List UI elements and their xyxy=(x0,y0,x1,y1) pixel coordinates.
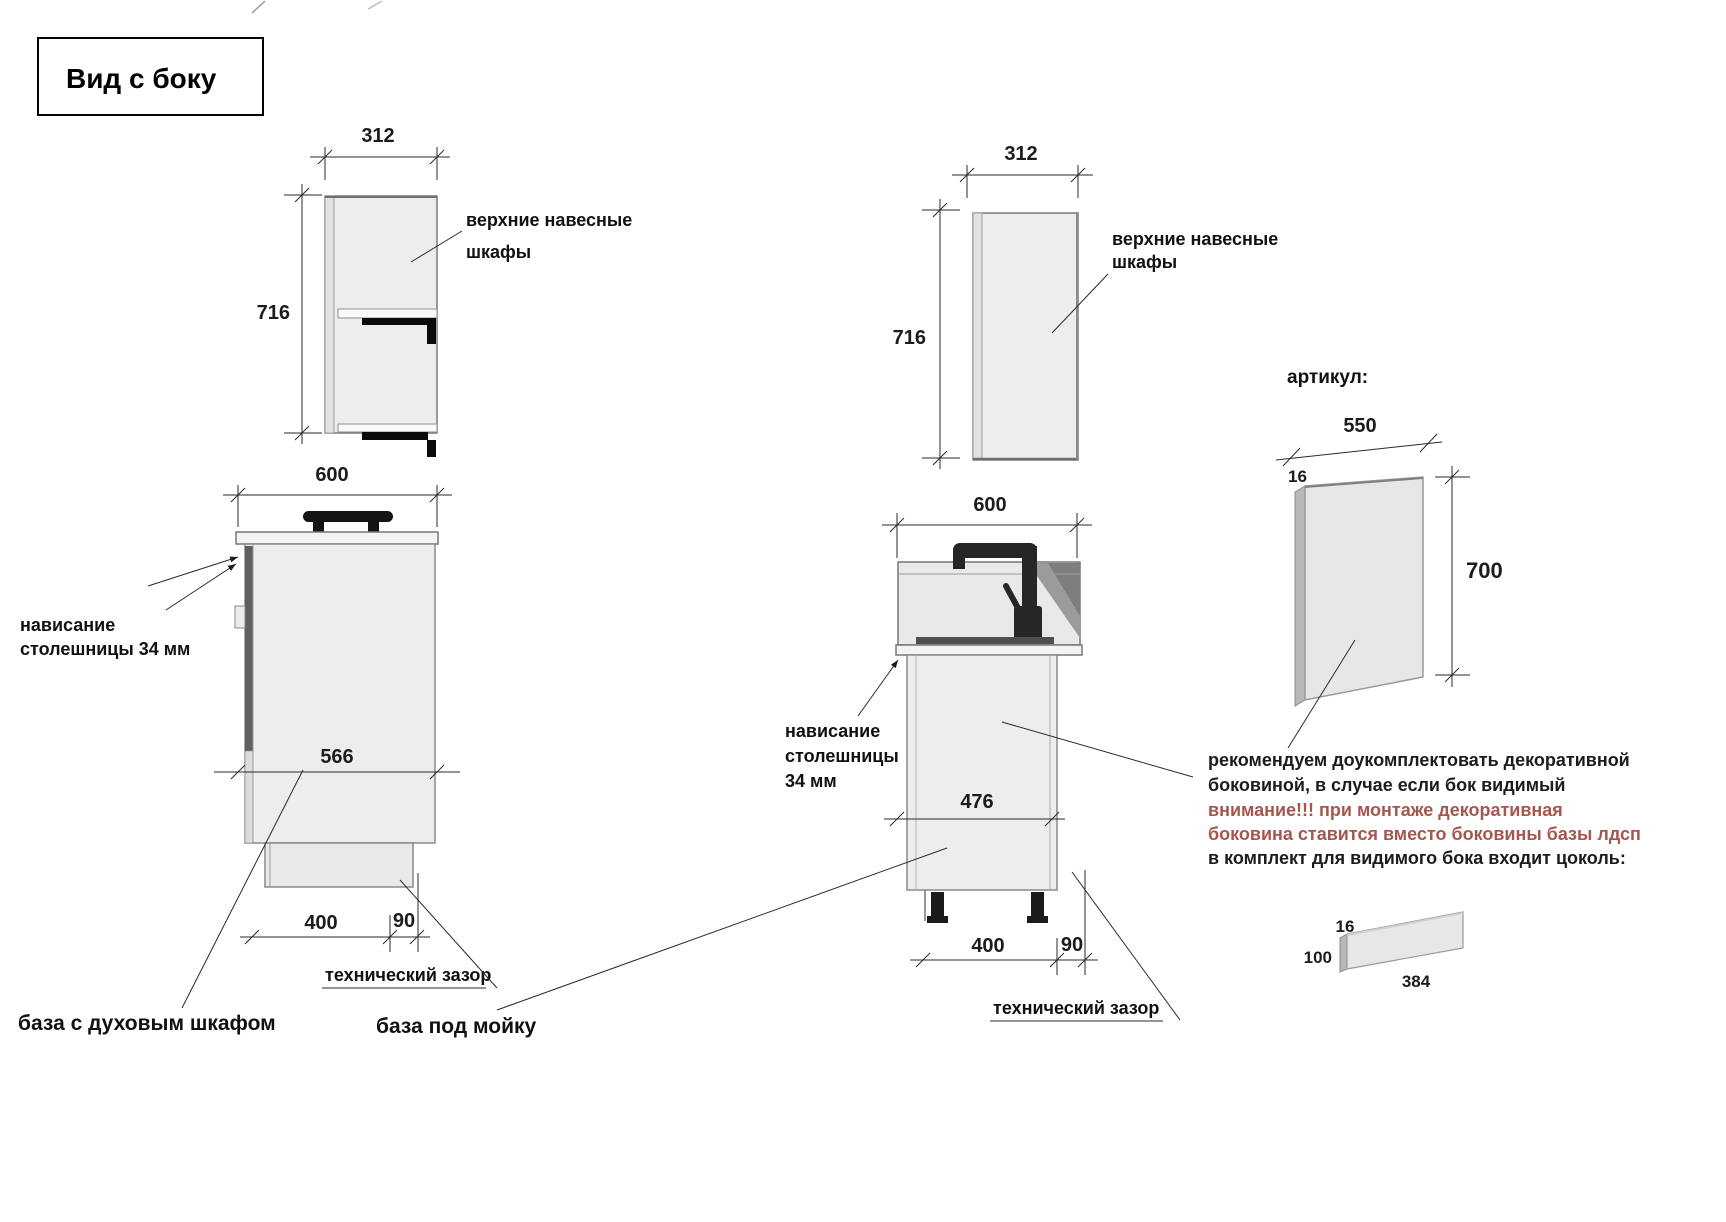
dim-value: 312 xyxy=(1004,143,1037,165)
oven-base-drawing xyxy=(235,511,438,887)
note-line-warning: боковина ставится вместо боковины базы л… xyxy=(1208,824,1641,844)
dim-value: 90 xyxy=(393,910,415,932)
svg-text:нависание: нависание xyxy=(785,721,880,741)
label-wall-cabinets-right: верхние навесные шкафы xyxy=(1052,229,1278,333)
page-title: Вид с боку xyxy=(66,63,217,94)
wall-cabinet-right-drawing xyxy=(973,213,1078,460)
svg-text:нависание: нависание xyxy=(20,615,115,635)
dim-value: 400 xyxy=(971,935,1004,957)
dim-value: 312 xyxy=(361,125,394,147)
drawing-canvas: Вид с боку 312 716 xyxy=(0,0,1726,1222)
panel-drawing xyxy=(1295,477,1423,706)
figure-wall-cabinet-right: 312 716 верхние навесные шкафы xyxy=(893,143,1279,469)
sink-rim xyxy=(916,637,1054,644)
dim-height-716: 716 xyxy=(893,199,960,469)
plinth-drawing xyxy=(1340,912,1463,972)
dim-value: 716 xyxy=(257,302,290,324)
wall-cabinet-left-drawing xyxy=(325,196,437,457)
dim-value: 90 xyxy=(1061,934,1083,956)
dim-value: 600 xyxy=(973,494,1006,516)
dim-value: 550 xyxy=(1343,415,1376,437)
dim-height: 100 xyxy=(1304,948,1332,967)
dim-value: 566 xyxy=(320,746,353,768)
title-box: Вид с боку xyxy=(38,38,263,115)
cropped-top-marks xyxy=(252,1,382,13)
figure-oven-base: 600 566 xyxy=(18,464,497,1035)
note-line: в комплект для видимого бока входит цоко… xyxy=(1208,848,1626,868)
figure-plinth: 16 100 384 xyxy=(1304,912,1463,991)
dim-width-550: 550 xyxy=(1276,415,1442,466)
bracket-bar xyxy=(362,318,428,325)
label-overhang-left: нависание столешницы 34 мм xyxy=(20,557,238,659)
figure-decor-panel: артикул: 550 16 700 xyxy=(1276,367,1503,748)
adjustable-legs xyxy=(927,892,1048,923)
note-line-warning: внимание!!! при монтаже декоративная xyxy=(1208,800,1563,820)
countertop xyxy=(896,645,1082,655)
dim-thickness: 16 xyxy=(1288,467,1307,486)
cabinet-body xyxy=(245,544,435,843)
bracket-leg xyxy=(427,318,436,344)
dim-height-700: 700 xyxy=(1435,466,1503,687)
dim-height-716: 716 xyxy=(257,184,322,444)
label-overhang-right: нависание столешницы 34 мм xyxy=(785,660,899,791)
dim-width-312: 312 xyxy=(310,125,450,180)
note-line: боковиной, в случае если бок видимый xyxy=(1208,775,1566,795)
svg-text:база под мойку: база под мойку xyxy=(376,1015,536,1038)
svg-text:шкафы: шкафы xyxy=(466,242,531,262)
dim-value: 600 xyxy=(315,464,348,486)
hinge-tab xyxy=(235,606,245,628)
figure-sink-base: 600 xyxy=(376,494,1193,1038)
articul-heading: артикул: xyxy=(1287,367,1368,388)
countertop xyxy=(236,532,438,544)
svg-text:шкафы: шкафы xyxy=(1112,252,1177,272)
bottom-shelf xyxy=(338,424,437,432)
dim-value: 700 xyxy=(1466,558,1503,583)
sink-base-drawing xyxy=(896,543,1082,923)
dim-value: 476 xyxy=(960,791,993,813)
svg-text:технический зазор: технический зазор xyxy=(993,998,1159,1018)
label-sink-base-name: база под мойку xyxy=(376,848,947,1038)
dark-side-strip xyxy=(245,546,253,751)
dim-value: 716 xyxy=(893,327,926,349)
note-line: рекомендуем доукомплектовать декоративно… xyxy=(1208,750,1630,770)
shelf xyxy=(338,309,437,318)
dim-length: 384 xyxy=(1402,972,1431,991)
label-tech-gap-left: технический зазор xyxy=(322,880,497,988)
dim-width-312: 312 xyxy=(952,143,1093,198)
figure-wall-cabinet-left: 312 716 верхние навесные шкафы xyxy=(257,125,633,457)
svg-text:верхние навесные: верхние навесные xyxy=(1112,229,1278,249)
label-wall-cabinets-left: верхние навесные шкафы xyxy=(411,210,632,262)
svg-text:столешницы: столешницы xyxy=(785,746,899,766)
svg-text:технический зазор: технический зазор xyxy=(325,965,491,985)
dim-value: 400 xyxy=(304,912,337,934)
plinth-recess xyxy=(265,843,413,887)
bracket-leg xyxy=(427,440,436,457)
svg-text:34 мм: 34 мм xyxy=(785,771,837,791)
bracket-bar xyxy=(362,432,428,440)
svg-text:столешницы 34 мм: столешницы 34 мм xyxy=(20,639,190,659)
svg-text:база с духовым шкафом: база с духовым шкафом xyxy=(18,1012,276,1035)
notes-paragraph: рекомендуем доукомплектовать декоративно… xyxy=(1208,750,1641,868)
svg-text:верхние навесные: верхние навесные xyxy=(466,210,632,230)
